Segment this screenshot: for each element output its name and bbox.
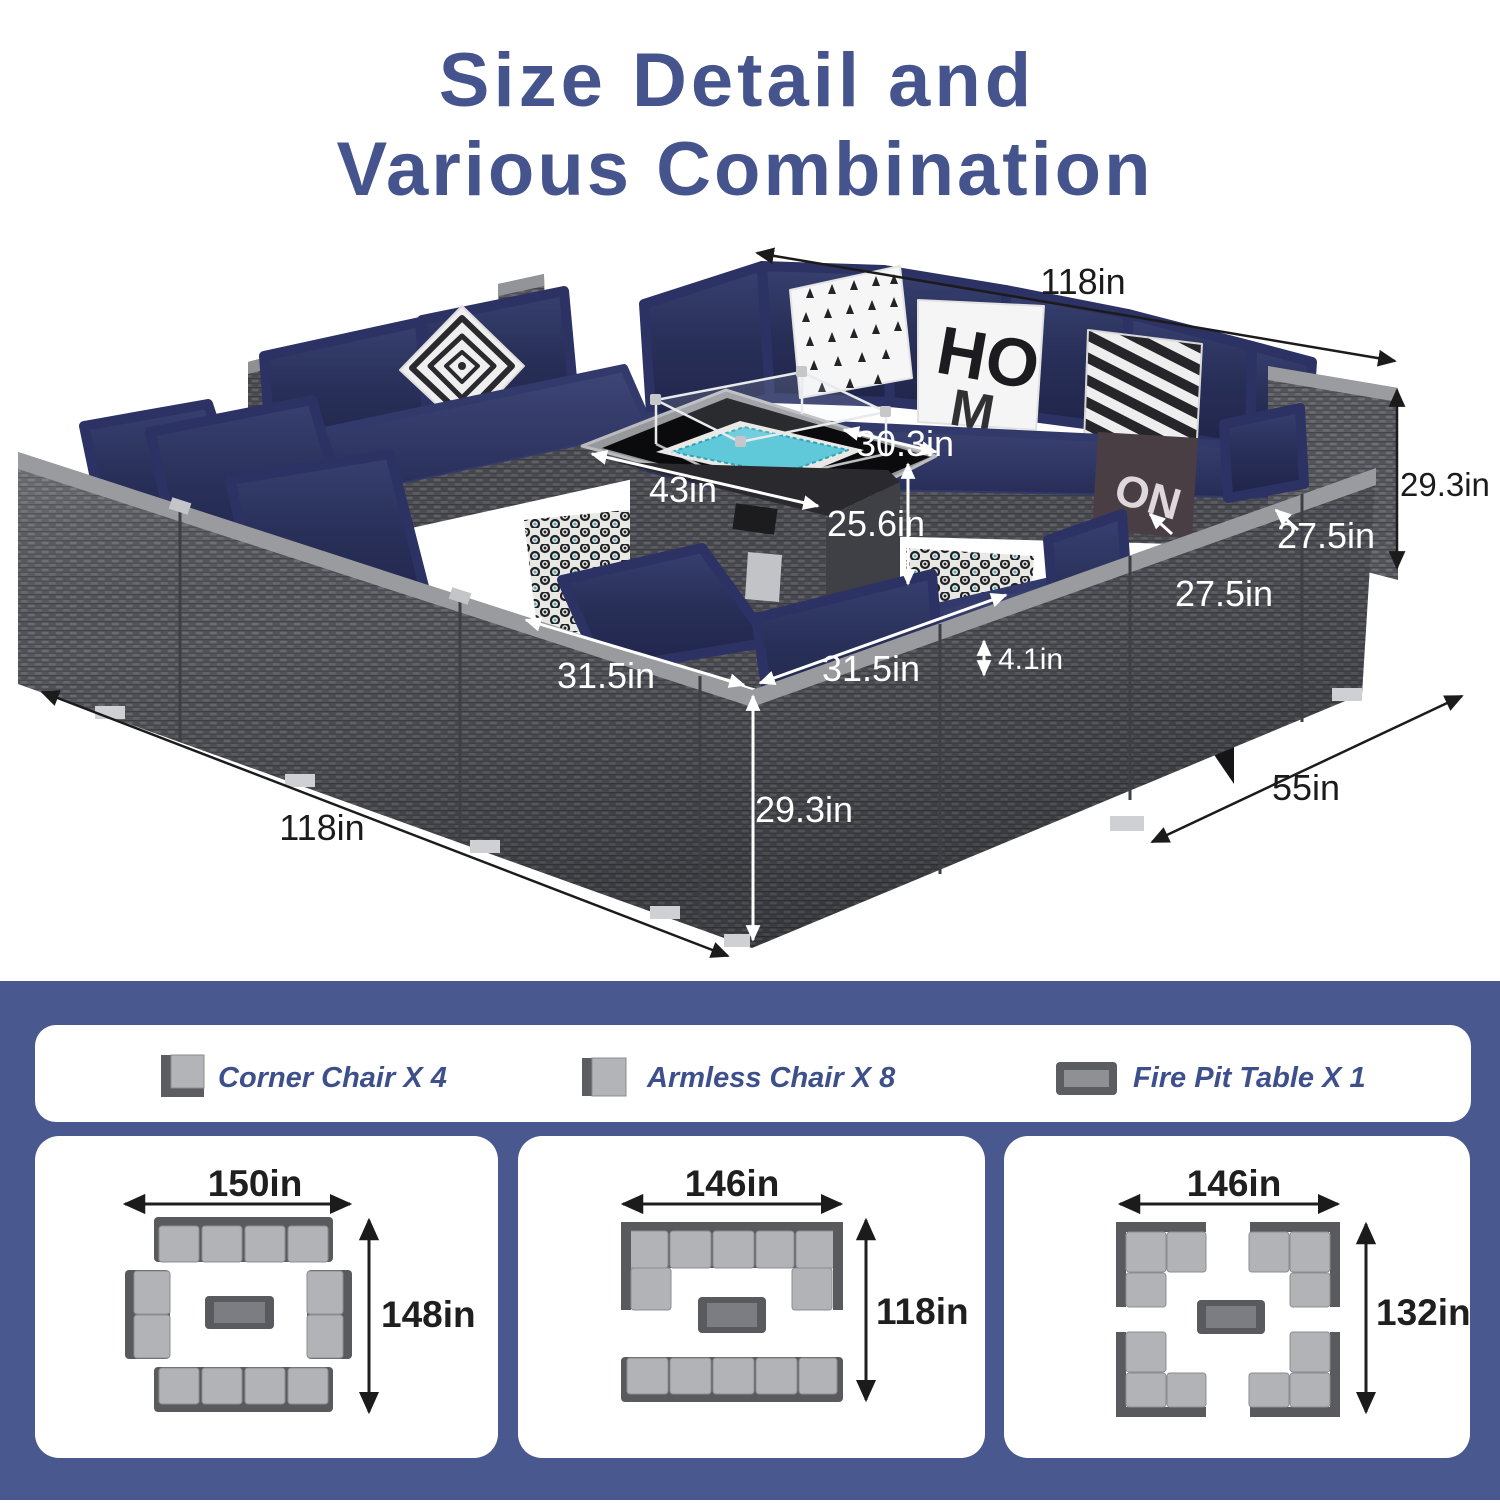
svg-text:Corner Chair X 4: Corner Chair X 4: [218, 1062, 447, 1094]
svg-text:118in: 118in: [876, 1291, 969, 1332]
svg-text:27.5in: 27.5in: [1277, 515, 1375, 556]
svg-text:Fire Pit Table X 1: Fire Pit Table X 1: [1133, 1062, 1366, 1094]
svg-text:Armless Chair X 8: Armless Chair X 8: [646, 1062, 896, 1094]
svg-text:132in: 132in: [1376, 1292, 1471, 1333]
svg-text:55in: 55in: [1272, 767, 1340, 808]
svg-text:Various Combination: Various Combination: [336, 127, 1153, 212]
svg-text:4.1in: 4.1in: [998, 643, 1063, 676]
svg-text:118in: 118in: [1040, 261, 1125, 302]
svg-text:43in: 43in: [649, 469, 717, 510]
svg-text:31.5in: 31.5in: [557, 655, 655, 696]
svg-text:146in: 146in: [685, 1163, 780, 1204]
svg-text:31.5in: 31.5in: [822, 648, 920, 689]
svg-text:146in: 146in: [1187, 1163, 1282, 1204]
svg-text:25.6in: 25.6in: [827, 503, 925, 544]
svg-text:27.5in: 27.5in: [1175, 573, 1273, 614]
svg-text:148in: 148in: [381, 1294, 476, 1335]
svg-text:118in: 118in: [279, 807, 364, 848]
svg-text:150in: 150in: [208, 1163, 303, 1204]
svg-text:30.3in: 30.3in: [856, 423, 954, 464]
svg-text:29.3in: 29.3in: [1400, 466, 1490, 503]
svg-text:29.3in: 29.3in: [755, 789, 853, 830]
svg-text:Size Detail and: Size Detail and: [439, 38, 1035, 123]
